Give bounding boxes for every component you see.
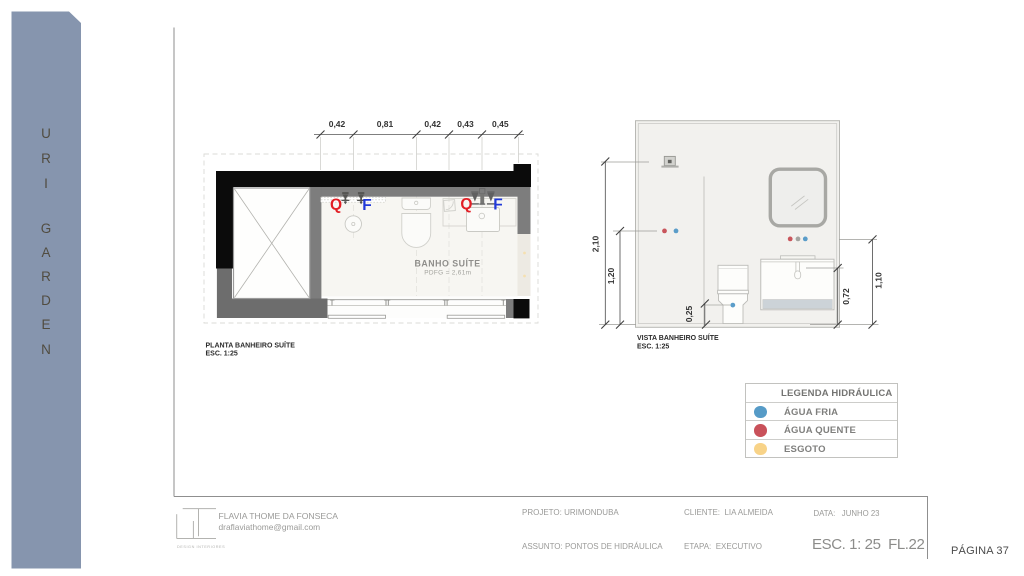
svg-text:2,10: 2,10 <box>591 235 601 252</box>
svg-text:Q: Q <box>460 196 472 213</box>
svg-text:0,43: 0,43 <box>457 119 474 129</box>
svg-text:F: F <box>493 197 502 214</box>
svg-text:0,42: 0,42 <box>329 119 346 129</box>
svg-text:0,45: 0,45 <box>492 119 509 129</box>
svg-text:PLANTA BANHEIRO SUÍTE: PLANTA BANHEIRO SUÍTE <box>206 340 296 349</box>
svg-text:1,10: 1,10 <box>874 272 884 289</box>
svg-text:0,42: 0,42 <box>424 119 441 129</box>
svg-text:ESC. 1:25: ESC. 1:25 <box>637 343 669 350</box>
svg-text:0,81: 0,81 <box>377 119 394 129</box>
svg-text:PDFG = 2,61m: PDFG = 2,61m <box>424 269 471 276</box>
svg-text:0,25: 0,25 <box>684 305 694 322</box>
svg-text:VISTA BANHEIRO SUÍTE: VISTA BANHEIRO SUÍTE <box>637 333 719 342</box>
svg-text:1,20: 1,20 <box>606 267 616 284</box>
svg-text:F: F <box>362 197 371 214</box>
svg-text:BANHO SUÍTE: BANHO SUÍTE <box>415 259 481 269</box>
svg-text:Q: Q <box>330 196 342 213</box>
svg-text:DESIGN INTERIORES: DESIGN INTERIORES <box>177 545 225 549</box>
svg-text:0,72: 0,72 <box>841 288 851 305</box>
svg-text:ESC. 1:25: ESC. 1:25 <box>206 350 238 357</box>
